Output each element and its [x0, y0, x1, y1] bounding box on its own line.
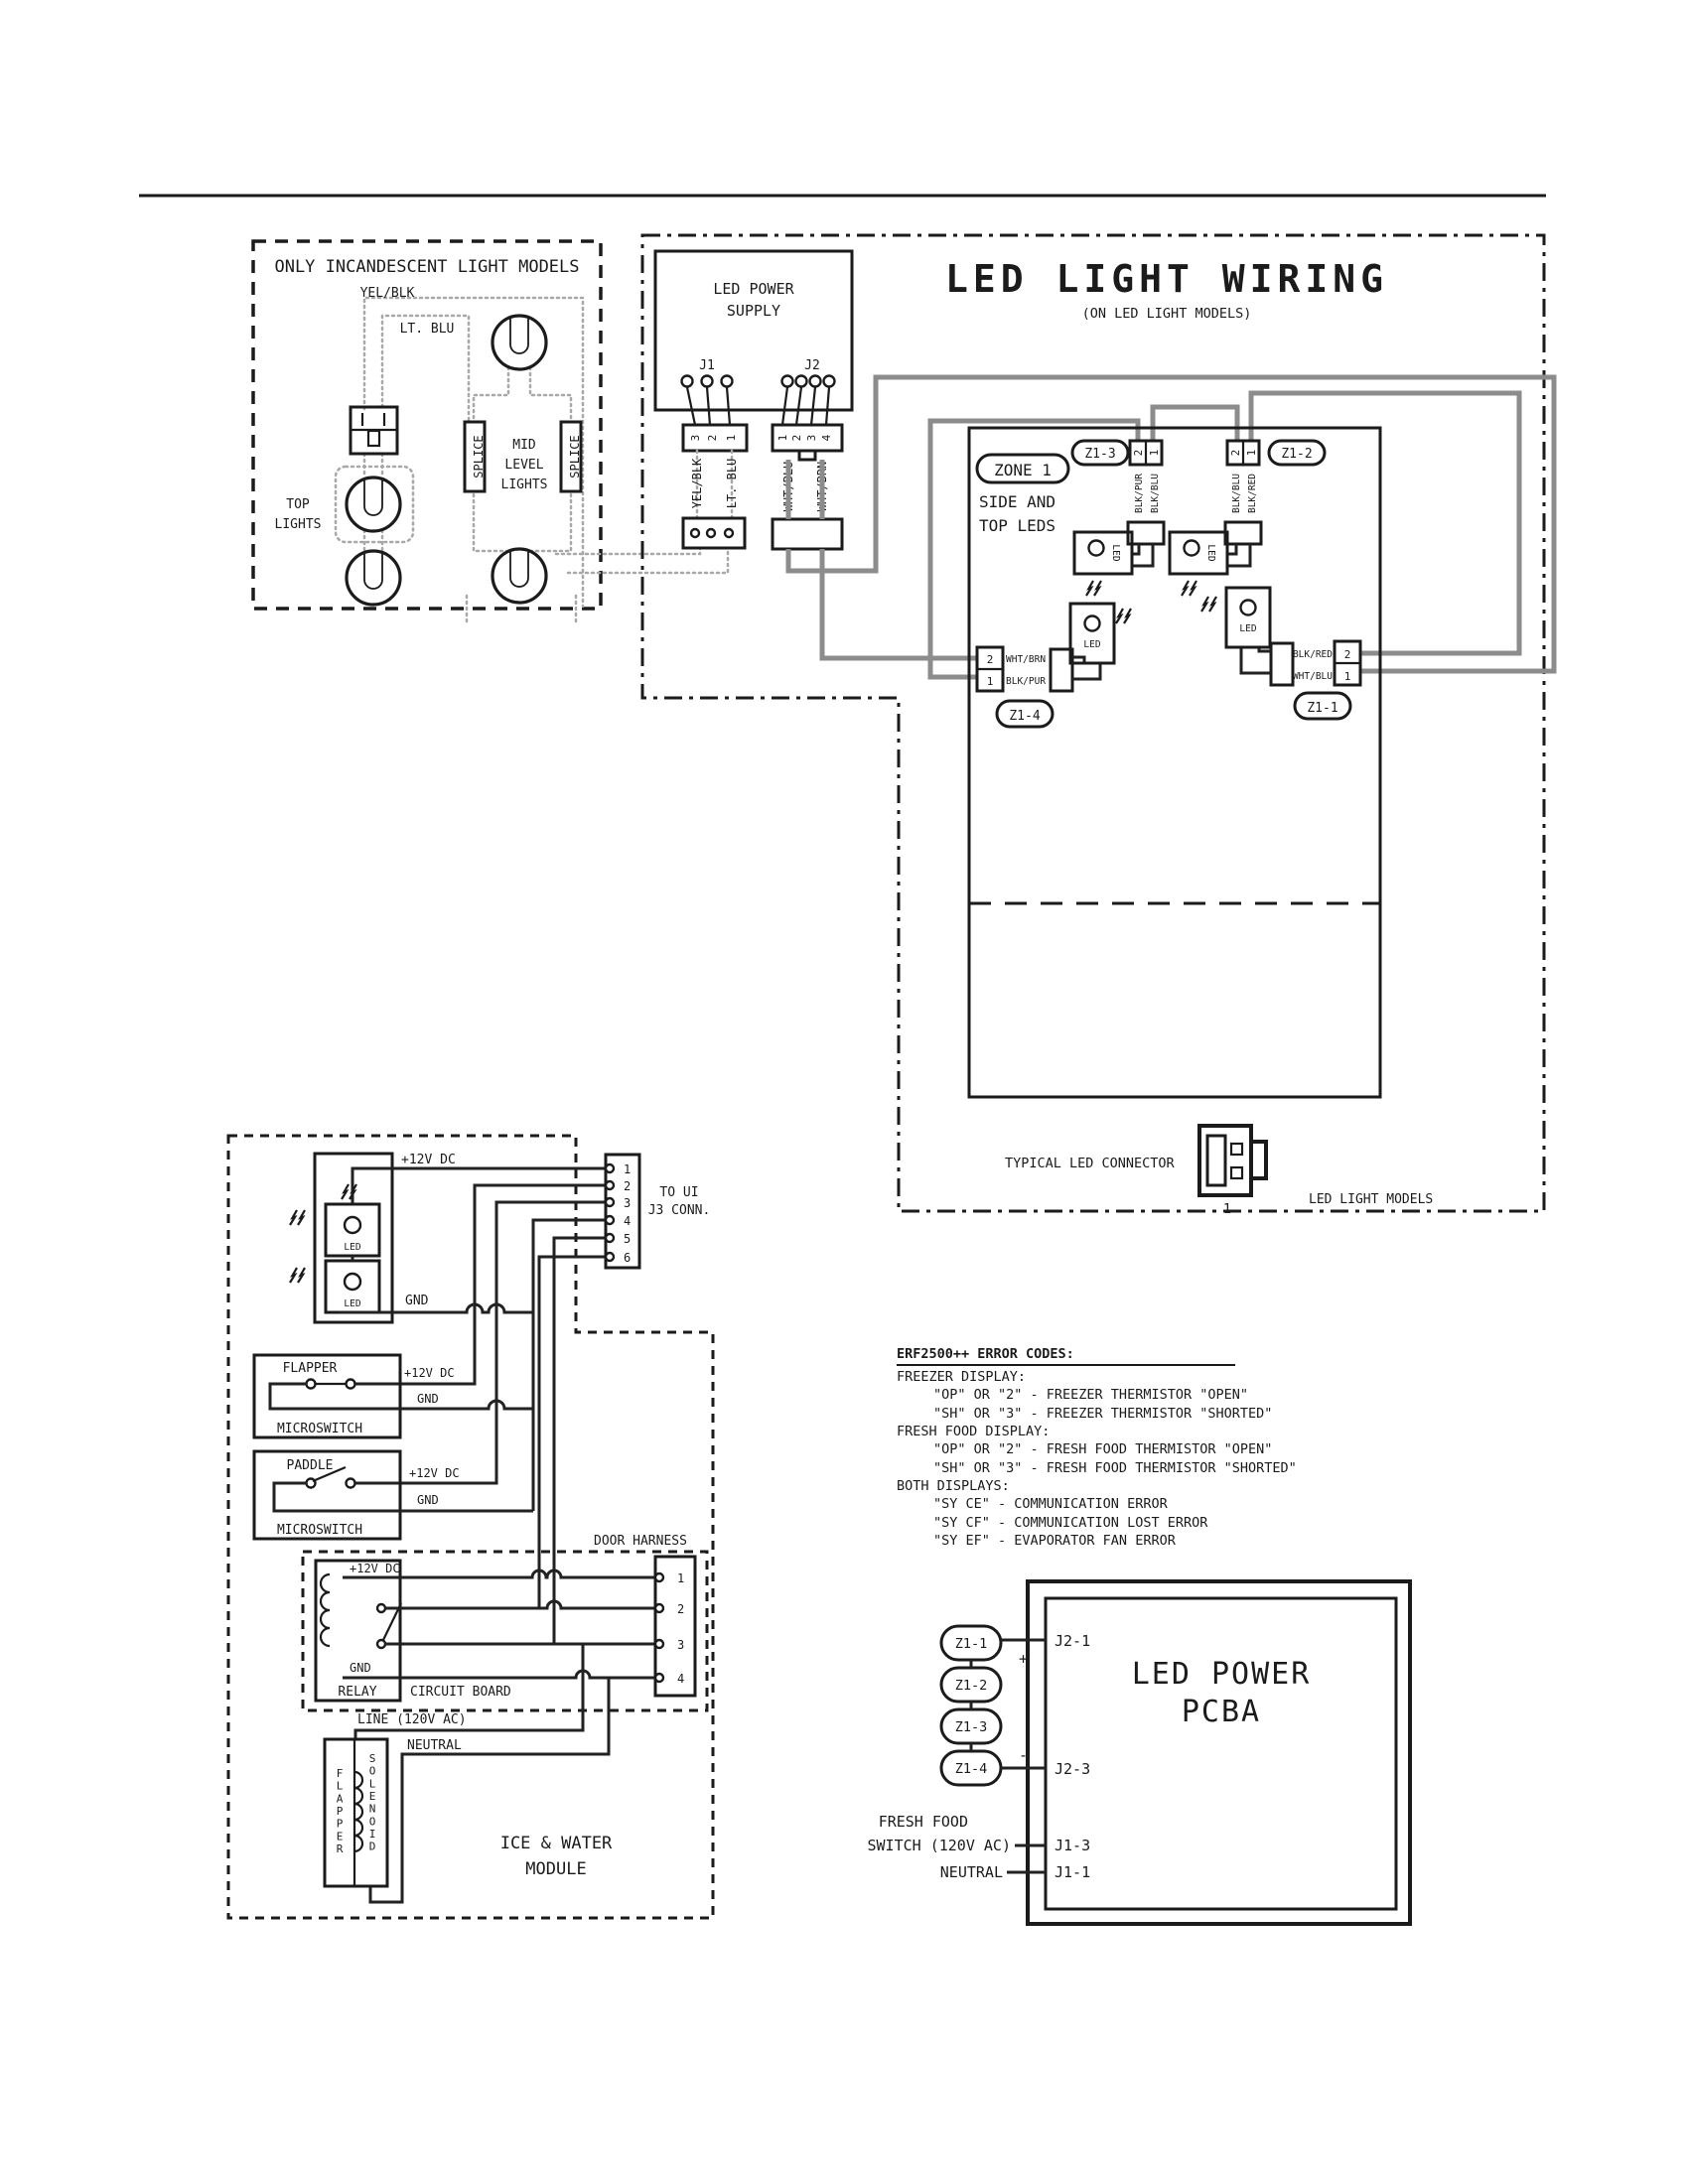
svg-text:LED: LED	[1110, 544, 1121, 561]
wire-label-yel-blk-2: YEL/BLK	[690, 458, 704, 508]
plus-sign: +	[1019, 1650, 1028, 1668]
led-module: LED	[1170, 532, 1227, 596]
error-codes: ERF2500++ ERROR CODES: FREEZER DISPLAY: …	[897, 1346, 1297, 1549]
error-codes-heading: ERF2500++ ERROR CODES:	[897, 1346, 1074, 1362]
svg-text:LED: LED	[1205, 544, 1216, 561]
svg-text:"OP" OR "2" - FRESH FOOD THERM: "OP" OR "2" - FRESH FOOD THERMISTOR "OPE…	[933, 1441, 1272, 1457]
svg-text:FRESH FOOD DISPLAY:: FRESH FOOD DISPLAY:	[897, 1424, 1050, 1439]
svg-text:1: 1	[677, 1571, 684, 1585]
minus-sign: -	[1019, 1746, 1028, 1764]
led-module: LED	[290, 1261, 379, 1312]
svg-text:MICROSWITCH: MICROSWITCH	[277, 1523, 362, 1538]
svg-text:Z1-1: Z1-1	[1307, 701, 1337, 716]
line-label: LINE (120V AC)	[357, 1712, 467, 1727]
svg-text:1: 1	[1245, 450, 1258, 457]
svg-text:6: 6	[624, 1251, 631, 1265]
led-module: LED	[1201, 588, 1270, 647]
svg-text:4: 4	[820, 434, 833, 441]
paddle-gnd-label: GND	[417, 1493, 439, 1507]
fresh-food-label1: FRESH FOOD	[879, 1813, 968, 1831]
ui-12v-label: +12V DC	[401, 1153, 456, 1167]
svg-text:2: 2	[706, 435, 719, 442]
ice-water-label2: MODULE	[525, 1859, 586, 1879]
bulb-icon	[492, 316, 546, 369]
connector-z1-4: 2 1 WHT/BRN BLK/PUR Z1-4	[977, 647, 1100, 727]
svg-text:2: 2	[1229, 450, 1242, 457]
connector-j2: J2 1 2 3 4 WHT/BLU WHT/BRN	[773, 358, 842, 549]
lamp-socket-icon	[351, 407, 397, 454]
svg-text:TYPICAL LED CONNECTOR: TYPICAL LED CONNECTOR	[1005, 1156, 1176, 1171]
connector-j1: J1 3 2 1 YEL/BLK LT. BLU	[682, 358, 748, 548]
flapper-microswitch: FLAPPER +12V DC GND MICROSWITCH	[254, 1355, 533, 1437]
incandescent-title: ONLY INCANDESCENT LIGHT MODELS	[274, 257, 579, 277]
svg-text:Z1-4: Z1-4	[955, 1761, 988, 1777]
to-ui-label1: TO UI	[659, 1185, 698, 1200]
svg-text:2: 2	[624, 1179, 631, 1193]
svg-text:3: 3	[677, 1638, 684, 1652]
psu-label2: SUPPLY	[727, 302, 780, 320]
neutral-label: NEUTRAL	[407, 1738, 462, 1753]
pcba-inner-box	[1046, 1598, 1396, 1909]
svg-text:ZONE 1: ZONE 1	[994, 461, 1052, 479]
svg-text:SIDE AND: SIDE AND	[979, 492, 1055, 511]
svg-text:Z1-3: Z1-3	[1084, 447, 1115, 462]
splice-left: SPLICE	[465, 422, 486, 491]
dh-gnd-label: GND	[350, 1661, 371, 1675]
svg-text:1: 1	[1148, 450, 1161, 457]
relay-label: RELAY	[338, 1685, 376, 1700]
wire-label-blk-pur-2: BLK/PUR	[1006, 676, 1046, 687]
svg-text:1: 1	[776, 435, 789, 442]
svg-text:Z1-3: Z1-3	[955, 1719, 988, 1735]
circuit-board-label: CIRCUIT BOARD	[410, 1685, 511, 1700]
svg-text:PADDLE: PADDLE	[287, 1458, 334, 1473]
wire-label-yel-blk: YEL/BLK	[360, 286, 415, 301]
led-module: LED	[1074, 532, 1132, 596]
led-wiring-section: LED LIGHT WIRING (ON LED LIGHT MODELS) L…	[642, 235, 1554, 1217]
svg-text:3: 3	[624, 1196, 631, 1210]
connector-z1-2: Z1-2 2 1 BLK/BLU BLK/RED	[1225, 441, 1325, 566]
svg-text:"SY CF" - COMMUNICATION LOST E: "SY CF" - COMMUNICATION LOST ERROR	[933, 1515, 1208, 1531]
svg-text:1: 1	[624, 1162, 631, 1176]
svg-text:2: 2	[1132, 450, 1145, 457]
svg-text:5: 5	[624, 1232, 631, 1246]
pcba-neutral-label: NEUTRAL	[940, 1863, 1003, 1881]
paddle-microswitch: PADDLE +12V DC GND MICROSWITCH	[254, 1451, 533, 1539]
svg-text:4: 4	[624, 1214, 631, 1228]
wire-label-blk-blu: BLK/BLU	[1150, 474, 1161, 513]
mid-level-label1: MID	[512, 438, 536, 453]
svg-text:SPLICE: SPLICE	[568, 435, 582, 478]
svg-text:LED: LED	[344, 1242, 360, 1253]
mid-level-label3: LIGHTS	[501, 478, 548, 492]
led-subtitle: (ON LED LIGHT MODELS)	[1082, 306, 1252, 322]
ui-section: +12V DC LED LED GND 1 2	[228, 1136, 713, 1918]
flapper-12v-label: +12V DC	[404, 1366, 455, 1380]
solenoid-coil-icon	[354, 1772, 362, 1851]
svg-text:LED: LED	[1083, 639, 1100, 650]
bulb-icon	[347, 478, 400, 531]
zone-label: ZONE 1 SIDE AND TOP LEDS	[977, 455, 1068, 535]
led-light-models-label: LED LIGHT MODELS	[1309, 1192, 1433, 1207]
svg-text:SPLICE: SPLICE	[472, 435, 486, 478]
connector-z1-1: 2 1 BLK/RED WHT/BLU Z1-1	[1241, 641, 1360, 719]
connector-j3: 1 2 3 4 5 6	[606, 1155, 639, 1268]
mid-level-label2: LEVEL	[504, 458, 543, 473]
led-module: LED	[290, 1204, 379, 1256]
led-section-border	[642, 235, 1544, 1211]
pcba-title1: LED POWER	[1132, 1657, 1312, 1692]
svg-text:Z1-1: Z1-1	[955, 1636, 988, 1652]
j1-1-label: J1-1	[1055, 1863, 1090, 1881]
svg-text:J2: J2	[804, 358, 820, 373]
top-lights-label2: LIGHTS	[275, 517, 322, 532]
svg-text:2: 2	[677, 1602, 684, 1616]
typical-led-connector: TYPICAL LED CONNECTOR 1	[1005, 1126, 1266, 1217]
wire-label-blk-blu-2: BLK/BLU	[1231, 474, 1242, 513]
svg-text:3: 3	[689, 435, 702, 442]
relay-coil-icon	[321, 1574, 330, 1646]
svg-text:FLAPPER: FLAPPER	[283, 1361, 338, 1376]
psu-label1: LED POWER	[713, 280, 794, 298]
svg-text:2: 2	[790, 435, 803, 442]
bulb-icon	[347, 551, 400, 605]
connector-pin-number: 1	[1223, 1201, 1231, 1217]
top-lights-label: TOP	[286, 497, 310, 512]
svg-text:Z1-4: Z1-4	[1009, 709, 1040, 724]
svg-text:TOP LEDS: TOP LEDS	[979, 516, 1055, 535]
flapper-gnd-label: GND	[417, 1392, 439, 1406]
svg-text:"SY CE" - COMMUNICATION ERROR: "SY CE" - COMMUNICATION ERROR	[933, 1496, 1169, 1512]
wiring-diagram-page: ONLY INCANDESCENT LIGHT MODELS YEL/BLK L…	[0, 0, 1688, 2184]
to-ui-label2: J3 CONN.	[648, 1203, 711, 1218]
splice-right: SPLICE	[561, 422, 582, 491]
svg-text:LED: LED	[1239, 623, 1256, 634]
wire-label-lt-blu: LT. BLU	[400, 322, 455, 337]
svg-text:1: 1	[1344, 670, 1351, 683]
svg-text:"OP" OR "2" - FREEZER THERMIST: "OP" OR "2" - FREEZER THERMISTOR "OPEN"	[933, 1387, 1248, 1403]
lightning-icon	[342, 1184, 356, 1199]
svg-text:"SH" OR "3" - FREEZER THERMIST: "SH" OR "3" - FREEZER THERMISTOR "SHORTE…	[933, 1406, 1272, 1422]
wire-label-wht-brn-2: WHT/BRN	[1006, 654, 1046, 665]
j2-3-label: J2-3	[1055, 1760, 1090, 1778]
ui-gnd-label: GND	[405, 1294, 429, 1308]
svg-text:1: 1	[725, 435, 738, 442]
svg-text:"SY EF" - EVAPORATOR FAN ERROR: "SY EF" - EVAPORATOR FAN ERROR	[933, 1533, 1177, 1549]
dh-12v-label: +12V DC	[350, 1562, 400, 1575]
door-harness-box: RELAY CIRCUIT BOARD +12V DC GND 1 2 3 4	[303, 1552, 707, 1710]
svg-text:3: 3	[805, 435, 818, 442]
svg-text:1: 1	[987, 675, 994, 688]
wire-label-blk-red-2: BLK/RED	[1293, 649, 1333, 660]
led-harness-wires	[788, 377, 1554, 677]
svg-text:Z1-2: Z1-2	[1281, 447, 1312, 462]
led-title: LED LIGHT WIRING	[945, 257, 1388, 301]
j1-3-label: J1-3	[1055, 1837, 1090, 1854]
bulb-icon	[492, 549, 546, 603]
ice-water-label1: ICE & WATER	[500, 1834, 613, 1853]
pcba-title2: PCBA	[1182, 1695, 1261, 1729]
flapper-solenoid: FLAPPER SOLENOID	[325, 1739, 387, 1886]
led-module: LED	[1070, 604, 1131, 663]
wire-label-blk-pur: BLK/PUR	[1134, 474, 1145, 513]
svg-text:BOTH DISPLAYS:: BOTH DISPLAYS:	[897, 1478, 1010, 1494]
flapper-vertical-label: FLAPPER	[337, 1767, 344, 1855]
led-connector-icon	[1199, 1126, 1266, 1195]
solenoid-vertical-label: SOLENOID	[369, 1752, 376, 1853]
fresh-food-label2: SWITCH (120V AC)	[868, 1837, 1012, 1854]
svg-text:"SH" OR "3" - FRESH FOOD THERM: "SH" OR "3" - FRESH FOOD THERMISTOR "SHO…	[933, 1460, 1297, 1476]
svg-text:4: 4	[677, 1672, 684, 1686]
wire-label-lt-blu-2: LT. BLU	[725, 459, 739, 509]
svg-text:J1: J1	[699, 358, 715, 373]
svg-text:FREEZER DISPLAY:: FREEZER DISPLAY:	[897, 1369, 1026, 1385]
paddle-12v-label: +12V DC	[409, 1466, 460, 1480]
door-harness-label: DOOR HARNESS	[594, 1534, 687, 1549]
zone-connector-chain: Z1-1 Z1-2 Z1-3 Z1-4	[941, 1626, 1001, 1785]
svg-text:Z1-2: Z1-2	[955, 1678, 988, 1694]
svg-text:2: 2	[987, 653, 994, 666]
wire-label-wht-blu-2: WHT/BLU	[1293, 671, 1333, 682]
svg-text:MICROSWITCH: MICROSWITCH	[277, 1422, 362, 1436]
wire-label-blk-red: BLK/RED	[1247, 474, 1258, 513]
svg-text:2: 2	[1344, 648, 1351, 661]
j2-1-label: J2-1	[1055, 1632, 1090, 1650]
pcba-section: LED POWER PCBA Z1-1 Z1-2 Z1-3 Z1-4 + - J…	[868, 1581, 1411, 1924]
svg-text:LED: LED	[344, 1298, 360, 1309]
incandescent-box	[253, 241, 601, 609]
